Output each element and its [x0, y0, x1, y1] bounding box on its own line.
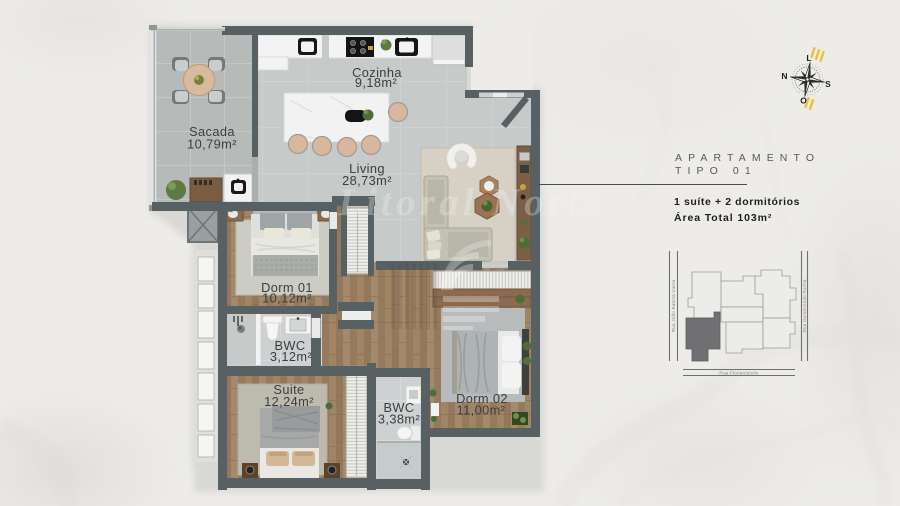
svg-text:12,24m²: 12,24m²: [264, 394, 314, 409]
svg-text:L: L: [806, 53, 811, 63]
svg-text:10,79m²: 10,79m²: [187, 137, 237, 152]
svg-text:APARTAMENTO: APARTAMENTO: [675, 152, 820, 164]
svg-text:N: N: [781, 71, 787, 81]
svg-text:1 suíte + 2 dormitórios: 1 suíte + 2 dormitórios: [674, 196, 800, 208]
svg-text:3,38m²: 3,38m²: [378, 412, 421, 427]
svg-text:11,00m²: 11,00m²: [457, 403, 506, 418]
svg-text:S: S: [825, 79, 831, 89]
svg-text:9,18m²: 9,18m²: [355, 75, 398, 90]
svg-text:TIPO 01: TIPO 01: [675, 165, 757, 177]
svg-text:3,12m²: 3,12m²: [270, 349, 313, 364]
svg-text:Rua Gumercindo Rocha: Rua Gumercindo Rocha: [802, 279, 807, 333]
svg-text:Rua João Batista Vieira: Rua João Batista Vieira: [671, 279, 676, 332]
svg-text:10,12m²: 10,12m²: [262, 291, 312, 306]
svg-text:Rua Florianópolis: Rua Florianópolis: [719, 370, 759, 375]
svg-text:28,73m²: 28,73m²: [342, 173, 392, 188]
svg-text:Área Total 103m²: Área Total 103m²: [674, 211, 772, 224]
